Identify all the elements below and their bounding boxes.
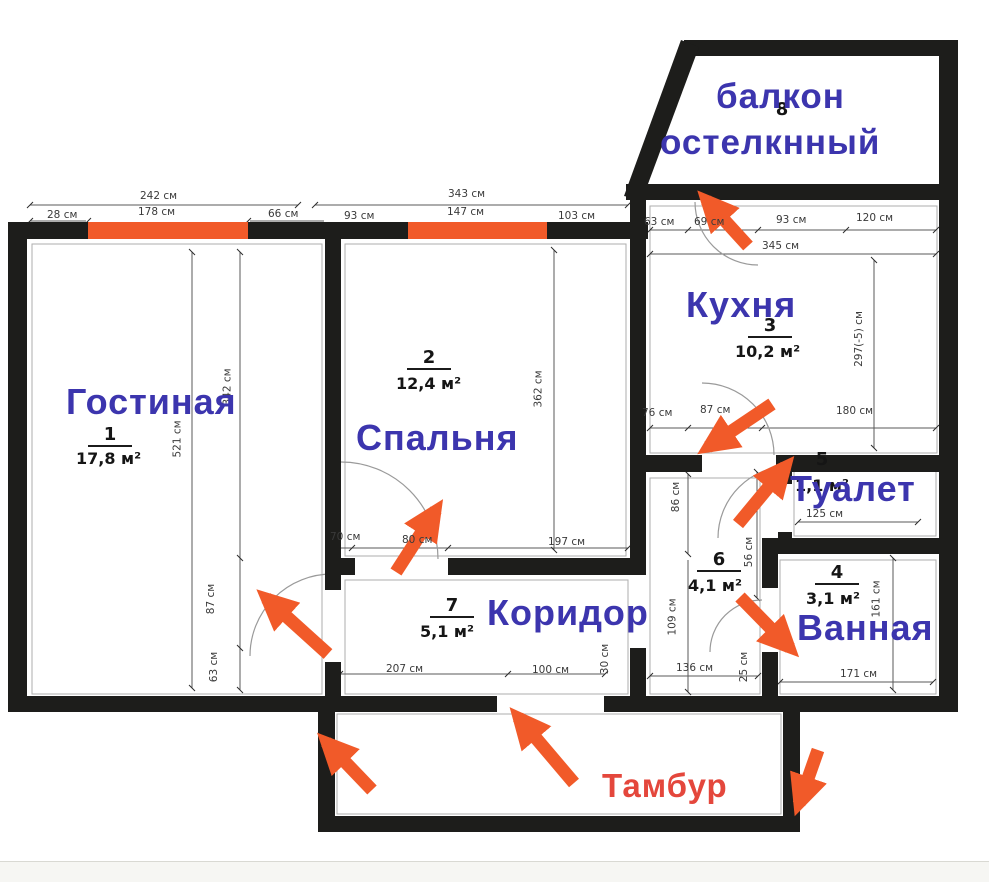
dim-br-top-a: 93 см bbox=[344, 210, 374, 222]
dim-h6-left-v: 109 см bbox=[667, 598, 679, 635]
dim-bath-bot: 171 см bbox=[840, 668, 877, 680]
room-label-bedroom: Спальня bbox=[356, 417, 519, 459]
room-label-balcony-line1: балкон bbox=[716, 77, 845, 117]
dim-h6-bot: 136 см bbox=[676, 662, 713, 674]
dim-br-bot-b: 80 см bbox=[402, 534, 432, 546]
room-number-hall: 6 bbox=[697, 550, 741, 572]
dim-kt-bot-c: 180 см bbox=[836, 405, 873, 417]
dim-c7-bot-a: 207 см bbox=[386, 663, 423, 675]
dim-kt-top-c: 93 см bbox=[776, 214, 806, 226]
dim-c7-bot-b: 100 см bbox=[532, 664, 569, 676]
room-label-balcony-line2: остелкнный bbox=[660, 123, 880, 163]
room-number-bathroom: 4 bbox=[815, 563, 859, 585]
dim-kt-width-total: 345 см bbox=[762, 240, 799, 252]
dim-br-width-total: 343 см bbox=[448, 188, 485, 200]
tambur-right-arrow-icon bbox=[799, 750, 818, 804]
dim-kt-top-b: 69 см bbox=[694, 216, 724, 228]
dim-h6-bot-v: 25 см bbox=[738, 652, 750, 682]
dim-kt-top-a: 63 см bbox=[644, 216, 674, 228]
dim-lr-width-total: 242 см bbox=[140, 190, 177, 202]
floorplan: 1 17,8 м² 2 12,4 м² 3 10,2 м² 4 3,1 м² 5… bbox=[0, 0, 989, 882]
dim-lr-top-window: 178 см bbox=[138, 206, 175, 218]
living-door-arrow-icon bbox=[266, 598, 328, 654]
scan-edge-strip bbox=[0, 861, 989, 882]
dim-lr-bot-v1: 87 см bbox=[205, 584, 217, 614]
room-area-corridor: 5,1 м² bbox=[420, 622, 474, 641]
dim-c7-side: 30 см bbox=[599, 644, 611, 674]
dim-lr-top-a: 28 см bbox=[47, 209, 77, 221]
dim-br-bot-a: 70 см bbox=[330, 531, 360, 543]
dim-lr-bot-v2: 63 см bbox=[208, 652, 220, 682]
dim-kt-top-d: 120 см bbox=[856, 212, 893, 224]
room-label-tambur: Тамбур bbox=[602, 767, 728, 805]
room-label-hall: Коридор bbox=[487, 592, 649, 634]
dim-kt-height: 297(-5) см bbox=[853, 311, 865, 367]
room-area-bathroom: 3,1 м² bbox=[806, 589, 860, 608]
room-area-living: 17,8 м² bbox=[76, 449, 141, 468]
dim-h6-mid-v: 56 см bbox=[743, 537, 755, 567]
dim-br-bot-c: 197 см bbox=[548, 536, 585, 548]
room-label-living: Гостиная bbox=[66, 381, 237, 423]
dim-kt-bot-b: 87 см bbox=[700, 404, 730, 416]
room-area-bedroom: 12,4 м² bbox=[396, 374, 461, 393]
room-outlines bbox=[32, 206, 937, 814]
dim-br-top-window: 147 см bbox=[447, 206, 484, 218]
dim-h6-top-v: 86 см bbox=[670, 482, 682, 512]
bath-door-arrow-icon bbox=[740, 597, 790, 648]
bedroom-window-icon bbox=[408, 222, 547, 239]
room-label-bathroom: Ванная bbox=[797, 607, 934, 649]
dim-lr-top-b: 66 см bbox=[268, 208, 298, 220]
room-number-living: 1 bbox=[88, 425, 132, 447]
toilet-door-arrow-icon bbox=[738, 466, 786, 524]
dim-br-height: 362 см bbox=[533, 370, 545, 407]
dim-lr-height: 521 см bbox=[172, 420, 184, 457]
tambur-mid-arrow-icon bbox=[518, 717, 574, 783]
room-area-kitchen: 10,2 м² bbox=[735, 342, 800, 361]
room-number-bedroom: 2 bbox=[407, 348, 451, 370]
living-window-icon bbox=[88, 222, 248, 239]
room-label-toilet: Туалет bbox=[790, 468, 916, 510]
dim-kt-bot-a: 76 см bbox=[642, 407, 672, 419]
room-number-corridor: 7 bbox=[430, 596, 474, 618]
room-label-kitchen: Кухня bbox=[686, 284, 796, 326]
room-area-hall: 4,1 м² bbox=[688, 576, 742, 595]
dim-br-top-b: 103 см bbox=[558, 210, 595, 222]
